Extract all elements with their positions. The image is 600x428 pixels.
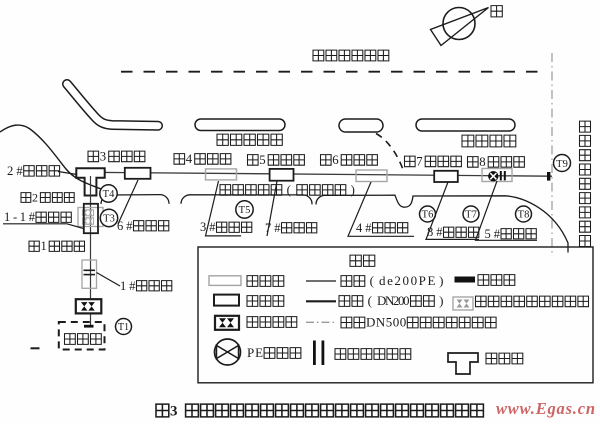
svg-text:1: 1 bbox=[41, 239, 47, 253]
svg-text:T6: T6 bbox=[422, 210, 434, 221]
svg-text:T8: T8 bbox=[518, 210, 530, 221]
svg-text:6: 6 bbox=[332, 153, 339, 167]
svg-text:de200PE: de200PE bbox=[379, 273, 435, 288]
svg-text:DN500: DN500 bbox=[366, 315, 406, 330]
svg-text:5: 5 bbox=[259, 153, 265, 167]
svg-text:www.Egas.cn: www.Egas.cn bbox=[496, 399, 595, 418]
svg-text:T4: T4 bbox=[103, 189, 115, 200]
svg-text:(: ( bbox=[368, 293, 372, 308]
svg-text:T3: T3 bbox=[103, 214, 115, 225]
svg-text:PE: PE bbox=[247, 345, 263, 360]
svg-text:2: 2 bbox=[32, 190, 38, 204]
svg-text:): ) bbox=[439, 293, 443, 308]
svg-text:): ) bbox=[439, 273, 443, 288]
svg-text:4: 4 bbox=[186, 152, 193, 166]
svg-text:DN200: DN200 bbox=[377, 293, 410, 308]
svg-text:7: 7 bbox=[416, 155, 423, 169]
svg-text:3: 3 bbox=[100, 150, 106, 164]
svg-text:1-1#: 1-1# bbox=[4, 210, 36, 224]
svg-text:): ) bbox=[351, 183, 355, 197]
svg-text:T1: T1 bbox=[118, 322, 129, 333]
svg-text:8: 8 bbox=[479, 155, 485, 169]
svg-text:T5: T5 bbox=[239, 205, 251, 216]
svg-text:T7: T7 bbox=[465, 210, 477, 221]
svg-text:(: ( bbox=[370, 273, 374, 288]
svg-text:(: ( bbox=[287, 183, 291, 197]
svg-text:3: 3 bbox=[170, 403, 178, 419]
svg-text:T9: T9 bbox=[556, 159, 568, 170]
